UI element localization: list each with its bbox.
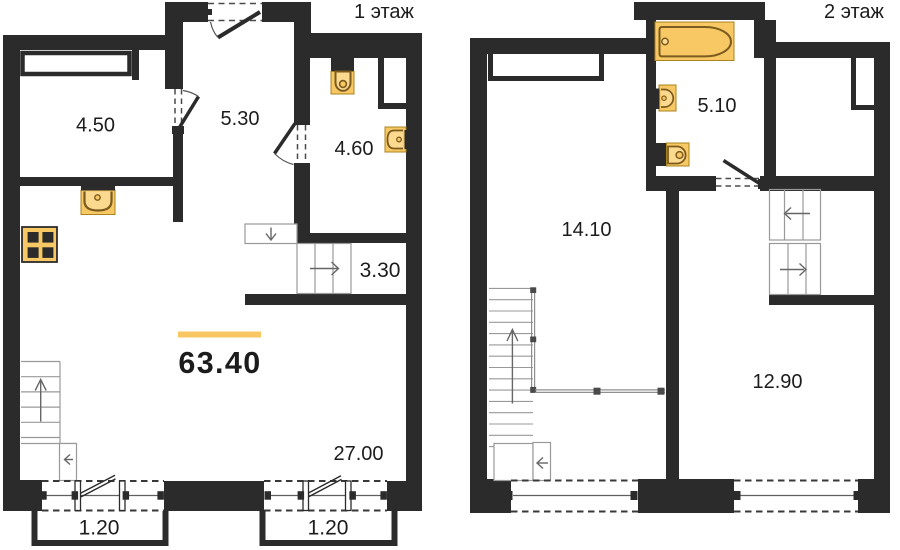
svg-text:1.20: 1.20 bbox=[79, 517, 120, 540]
svg-text:14.10: 14.10 bbox=[561, 219, 611, 241]
svg-text:1.20: 1.20 bbox=[308, 517, 349, 540]
svg-text:63.40: 63.40 bbox=[178, 346, 261, 380]
svg-text:12.90: 12.90 bbox=[752, 371, 802, 393]
svg-text:4.50: 4.50 bbox=[76, 115, 115, 137]
svg-text:2 этаж: 2 этаж bbox=[824, 1, 885, 23]
svg-text:27.00: 27.00 bbox=[333, 443, 383, 465]
svg-text:1 этаж: 1 этаж bbox=[354, 1, 415, 23]
svg-text:4.60: 4.60 bbox=[335, 138, 374, 160]
svg-text:5.10: 5.10 bbox=[698, 95, 737, 117]
svg-text:3.30: 3.30 bbox=[360, 259, 401, 282]
svg-text:5.30: 5.30 bbox=[221, 108, 260, 130]
